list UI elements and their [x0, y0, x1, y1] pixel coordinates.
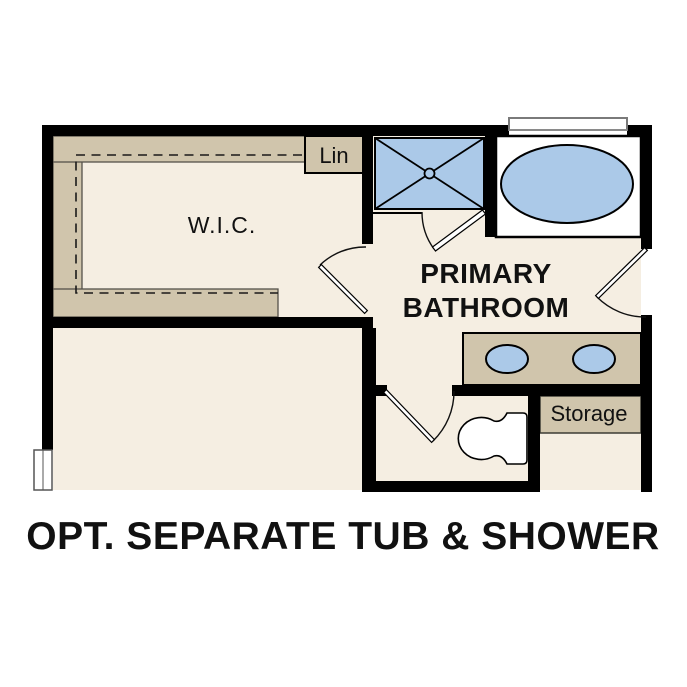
primary-bathroom-label-line1: PRIMARY [420, 258, 552, 289]
vanity [463, 333, 641, 385]
wall-top-right [627, 125, 652, 136]
bathtub-icon [501, 145, 633, 223]
wall-vanity-bottom [452, 385, 641, 396]
shower-drain-icon [425, 169, 435, 179]
wall-right-upper [641, 136, 652, 249]
toilet-icon [458, 413, 527, 464]
sink-left-icon [486, 345, 528, 373]
wall-wic-bottom [42, 317, 373, 328]
sink-right-icon [573, 345, 615, 373]
wall-right-lower [641, 315, 652, 492]
bathtub-area [496, 136, 641, 237]
shower-area [373, 138, 484, 213]
wall-shower-divider [485, 136, 496, 237]
lin-label: Lin [319, 143, 348, 168]
primary-bathroom-label-line2: BATHROOM [403, 292, 570, 323]
window-above-tub-icon [509, 118, 627, 130]
wall-top-left [42, 125, 509, 136]
wall-toilet-right [528, 396, 540, 492]
floor-plan-svg: W.I.C. Lin PRIMARY BATHROOM Storage OPT.… [0, 0, 687, 687]
wall-bedroom-right [362, 328, 376, 492]
storage-label: Storage [550, 401, 627, 426]
wall-toilet-bottom [362, 481, 540, 492]
floor-plan-image: W.I.C. Lin PRIMARY BATHROOM Storage OPT.… [0, 0, 687, 687]
wic-shelf-top [53, 136, 305, 162]
wall-wic-right [362, 136, 373, 244]
wall-left [42, 125, 53, 450]
wic-label: W.I.C. [188, 212, 257, 238]
plan-title: OPT. SEPARATE TUB & SHOWER [26, 515, 659, 558]
